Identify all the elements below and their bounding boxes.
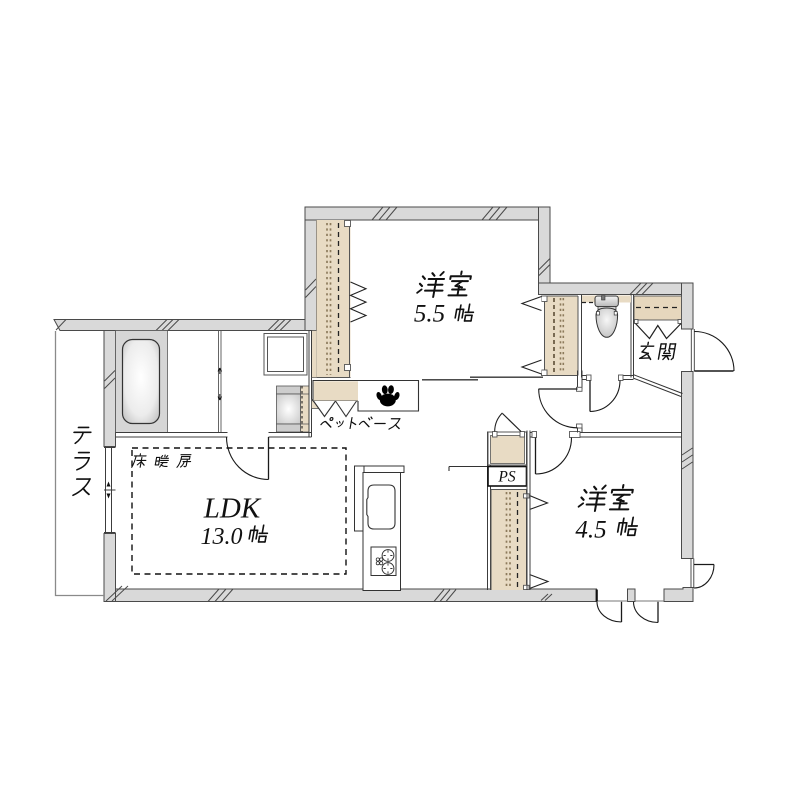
svg-text:LDK: LDK [203, 493, 262, 525]
svg-text:5.5: 5.5 [414, 301, 445, 328]
svg-text:13.0: 13.0 [201, 524, 243, 550]
svg-text:4.5: 4.5 [575, 517, 606, 544]
svg-text:PS: PS [497, 469, 515, 486]
